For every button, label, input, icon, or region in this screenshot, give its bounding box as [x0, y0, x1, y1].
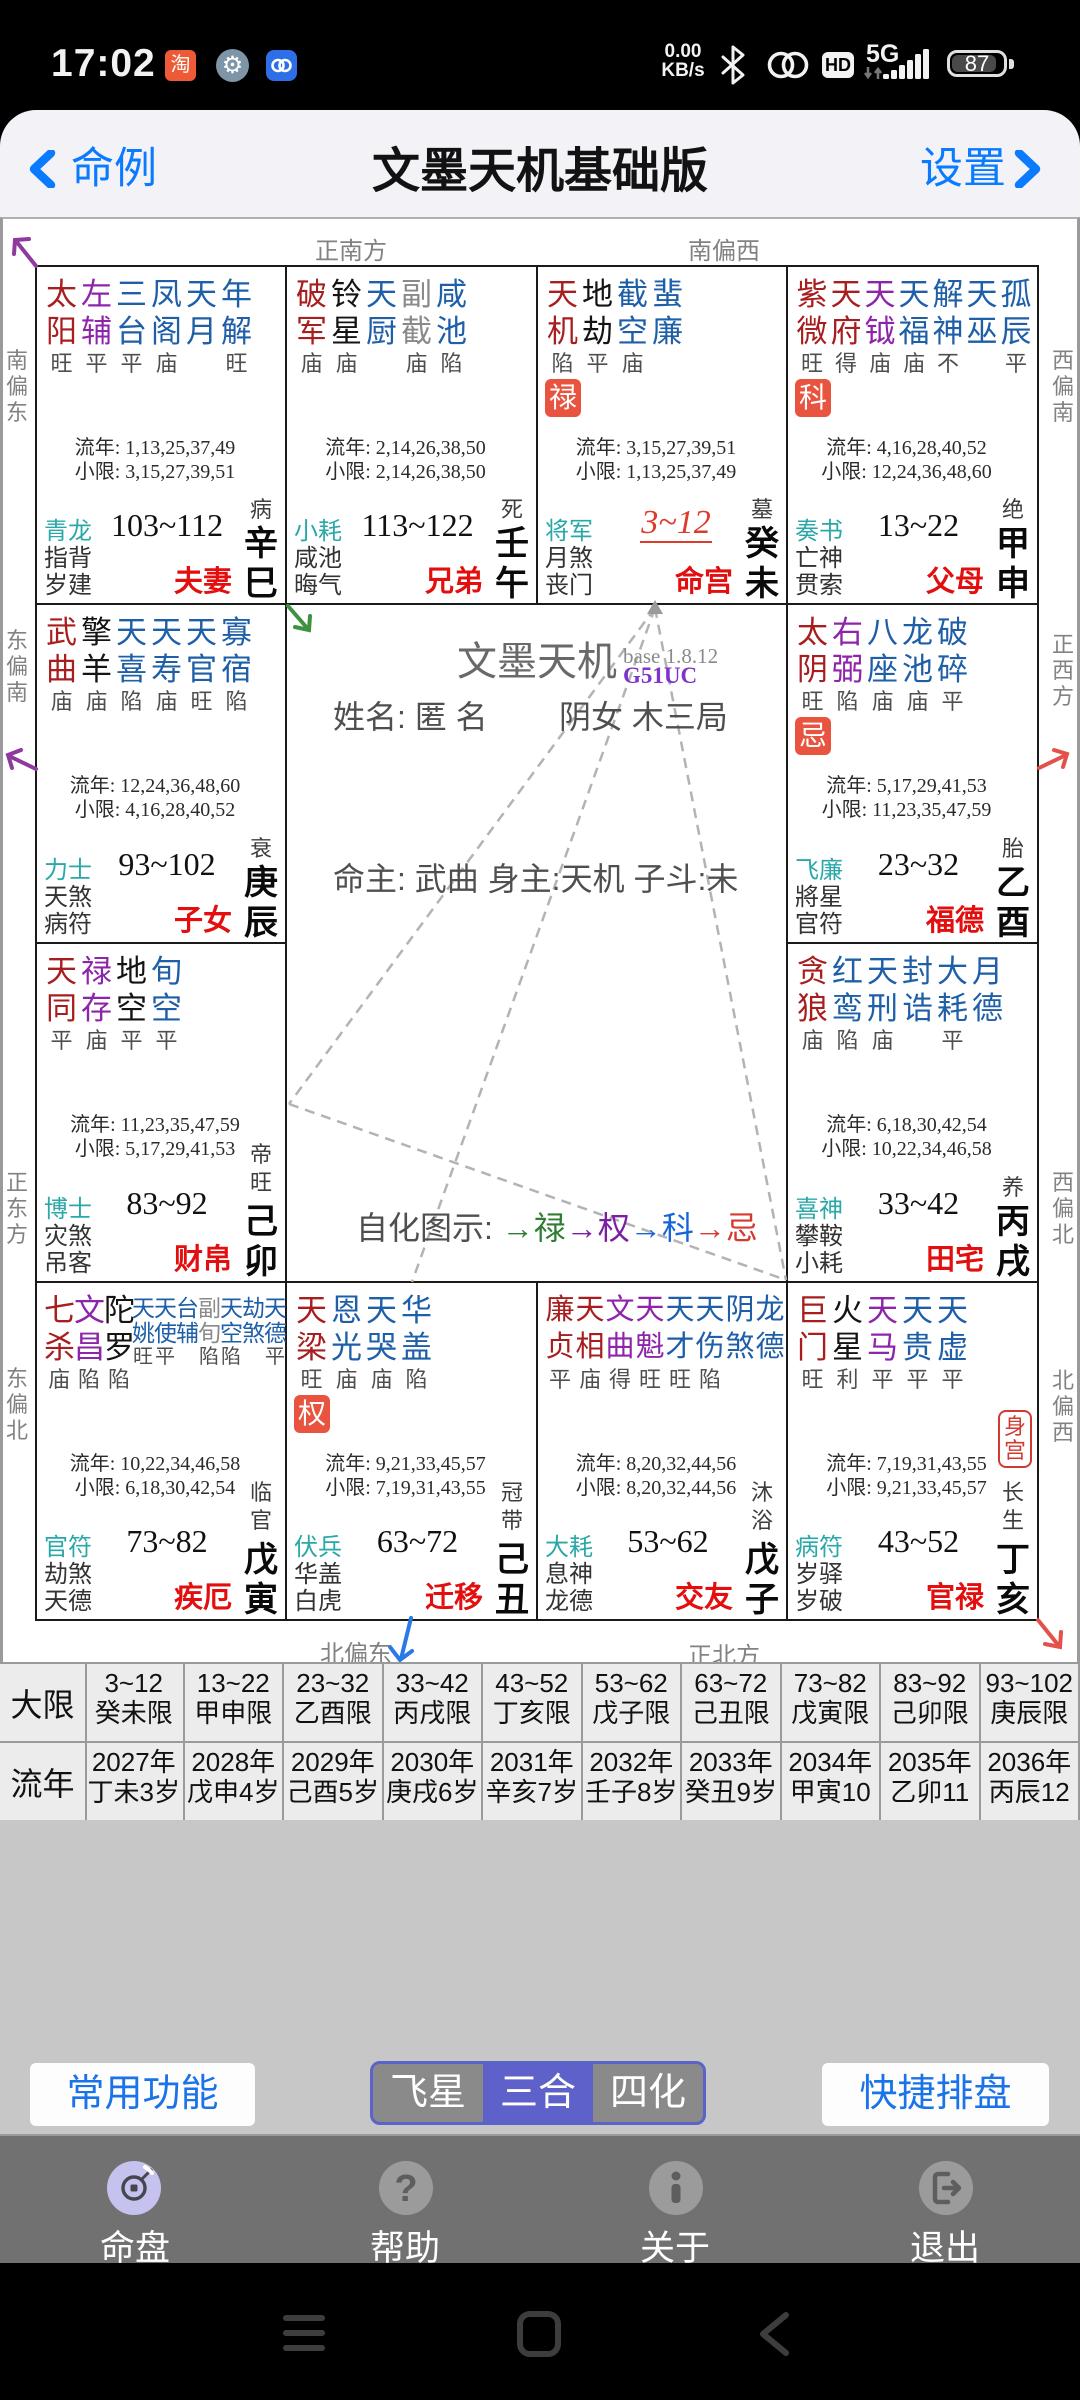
- svg-text:?: ?: [394, 2168, 417, 2210]
